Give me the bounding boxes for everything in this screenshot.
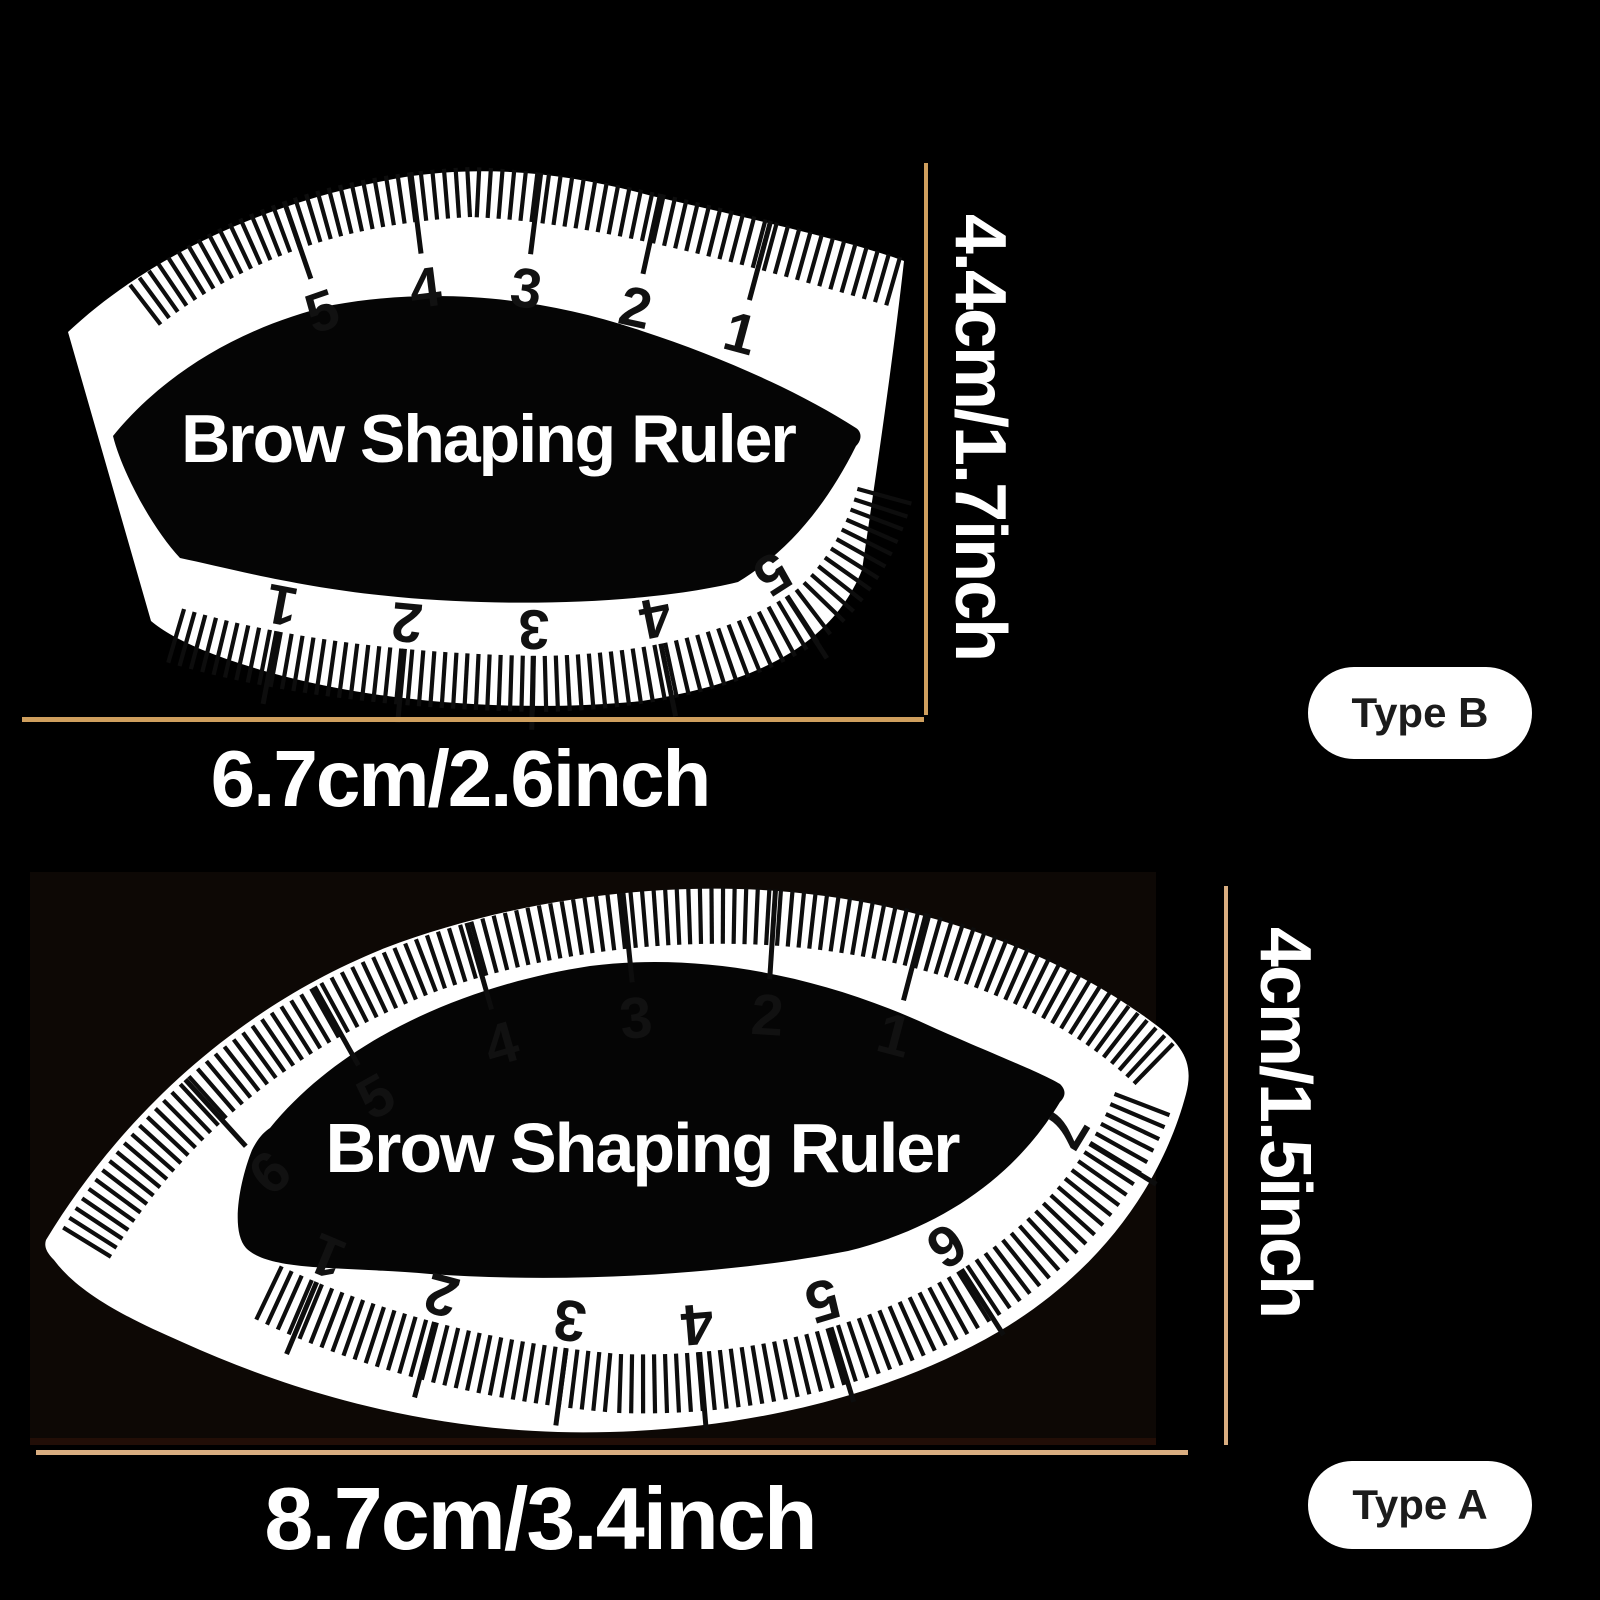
scale-number: 3 [518,598,550,662]
tick-mark [545,656,546,712]
tick-mark [755,889,757,945]
type-b-badge-label: Type B [1352,689,1489,737]
type-b-center-label: Brow Shaping Ruler [181,401,796,477]
type-b-height-dimension-line [924,163,928,715]
type-a-center-label: Brow Shaping Ruler [326,1109,961,1187]
tick-mark [510,655,512,711]
tick-mark [619,1354,621,1413]
tick-mark [477,167,480,217]
tick-mark [688,888,690,944]
tick-mark [654,1354,655,1413]
type-a-height-dimension-line [1224,886,1228,1445]
type-a-badge-label: Type A [1352,1481,1487,1529]
tick-mark [677,889,680,945]
type-a-height-label: 4cm/1.5inch [1248,842,1322,1402]
type-b-badge: Type B [1308,667,1532,759]
tick-mark [700,888,701,944]
product-infographic: Brow Shaping Ruler Brow Shaping Ruler 54… [0,0,1600,1600]
scale-number: 2 [749,982,785,1049]
scale-number: 4 [679,1290,717,1357]
tick-mark [499,655,501,711]
tick-mark [745,888,747,944]
tick-mark [676,1354,679,1413]
tick-mark [665,1354,667,1413]
type-b-width-label: 6.7cm/2.6inch [150,733,770,825]
type-a-width-dimension-line [36,1450,1188,1455]
tick-mark [476,654,479,710]
scale-number: 3 [617,984,656,1052]
tick-mark [467,167,470,217]
type-b-height-label: 4.4cm/1.7inch [943,157,1017,717]
type-a-width-label: 8.7cm/3.4inch [150,1468,930,1570]
tick-mark [631,1354,632,1413]
tick-mark [556,656,558,712]
tick-mark [567,655,570,711]
tick-mark [487,655,489,711]
type-b-width-dimension-line [22,717,924,722]
tick-mark [521,656,522,712]
scale-number: 2 [388,590,425,656]
tick-mark [734,888,735,944]
type-a-badge: Type A [1308,1461,1532,1549]
